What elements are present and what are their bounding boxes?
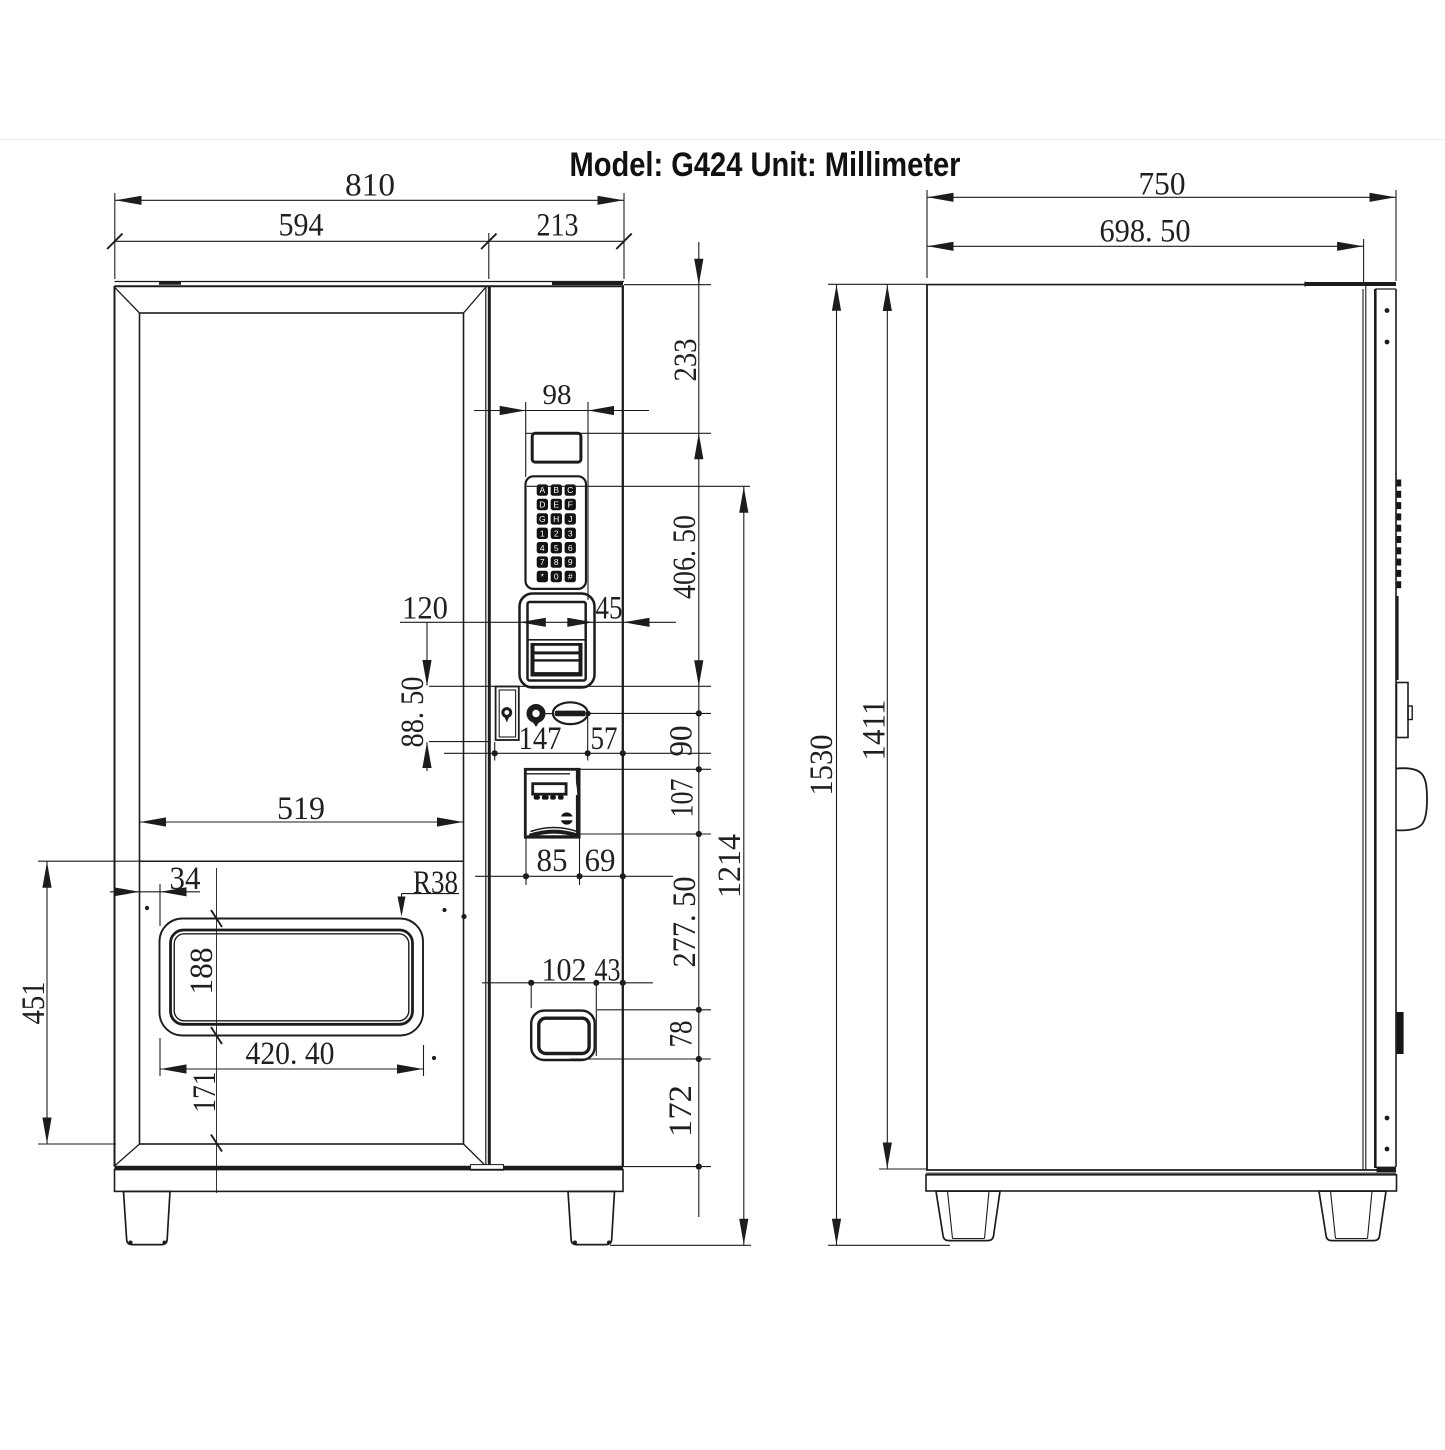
svg-text:750: 750	[1139, 167, 1186, 203]
svg-text:1530: 1530	[804, 735, 840, 796]
svg-text:J: J	[568, 514, 572, 524]
svg-text:5: 5	[554, 543, 559, 553]
svg-text:2: 2	[554, 528, 559, 538]
svg-text:6: 6	[568, 543, 573, 553]
svg-text:43: 43	[595, 953, 621, 989]
svg-text:171: 171	[187, 1072, 223, 1113]
svg-text:E: E	[553, 500, 559, 510]
svg-text:R38: R38	[413, 865, 458, 901]
svg-text:107: 107	[665, 779, 701, 818]
svg-text:7: 7	[540, 557, 545, 567]
svg-text:102: 102	[542, 953, 587, 989]
svg-text:9: 9	[568, 557, 573, 567]
svg-text:172: 172	[663, 1085, 699, 1137]
svg-text:277. 50: 277. 50	[667, 877, 703, 968]
svg-text:213: 213	[537, 208, 579, 244]
svg-text:Model: G424 Unit: Millimeter: Model: G424 Unit: Millimeter	[570, 146, 961, 184]
svg-text:57: 57	[591, 721, 618, 757]
svg-text:90: 90	[664, 726, 700, 757]
svg-text:8: 8	[554, 557, 559, 567]
svg-text:G: G	[539, 514, 546, 524]
svg-text:0: 0	[554, 572, 559, 582]
svg-text:85: 85	[537, 843, 568, 879]
svg-text:1: 1	[540, 528, 545, 538]
svg-text:451: 451	[16, 982, 52, 1025]
svg-text:120: 120	[402, 591, 448, 627]
svg-text:1214: 1214	[712, 834, 748, 898]
svg-text:420. 40: 420. 40	[246, 1036, 335, 1072]
svg-text:F: F	[568, 500, 573, 510]
svg-text:88. 50: 88. 50	[395, 677, 431, 748]
svg-text:H: H	[553, 514, 559, 524]
svg-text:45: 45	[596, 591, 623, 627]
svg-text:69: 69	[585, 843, 616, 879]
svg-text:810: 810	[345, 168, 395, 204]
svg-text:233: 233	[668, 339, 704, 382]
svg-text:147: 147	[519, 721, 562, 757]
svg-text:3: 3	[568, 528, 573, 538]
svg-text:519: 519	[277, 791, 325, 827]
svg-text:78: 78	[664, 1021, 700, 1048]
svg-text:188: 188	[184, 948, 220, 995]
svg-text:594: 594	[279, 208, 324, 244]
svg-text:34: 34	[170, 861, 201, 897]
svg-text:4: 4	[540, 543, 545, 553]
svg-text:1411: 1411	[857, 700, 893, 761]
svg-text:698. 50: 698. 50	[1100, 214, 1191, 250]
svg-text:98: 98	[543, 380, 572, 411]
svg-text:#: #	[568, 572, 573, 582]
svg-text:406. 50: 406. 50	[667, 515, 703, 599]
svg-text:D: D	[539, 500, 545, 510]
